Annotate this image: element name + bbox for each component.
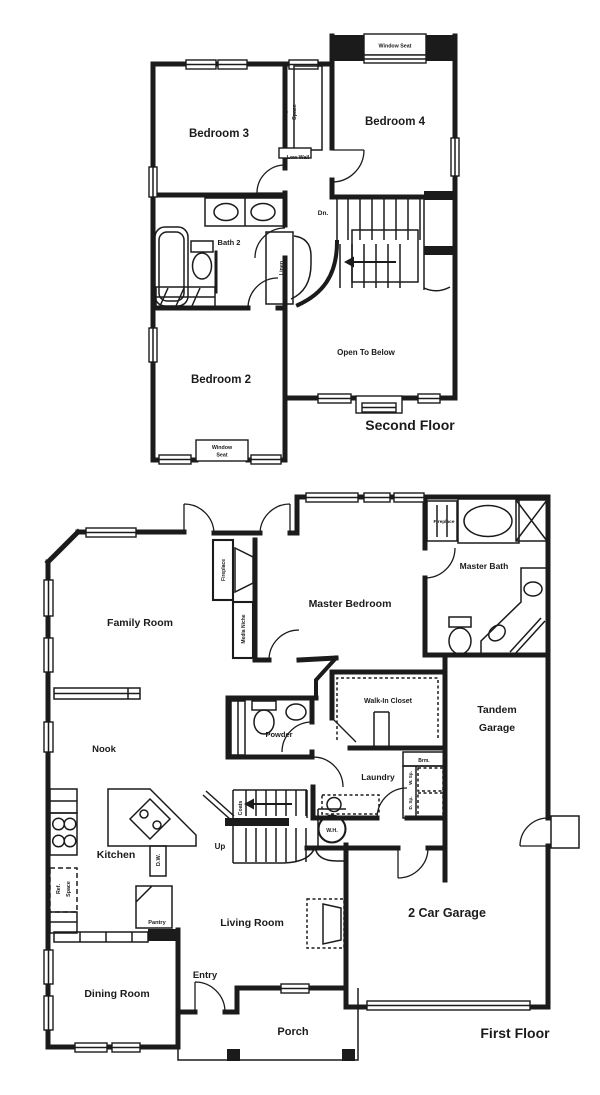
computer-space-label1: Computer — [283, 99, 289, 124]
firebox-icon — [235, 548, 253, 592]
toilet-icon — [191, 241, 213, 252]
bedroom4-label: Bedroom 4 — [365, 116, 426, 128]
bedroom2-label: Bedroom 2 — [191, 374, 251, 386]
second-floor-walls — [153, 35, 455, 460]
refrigerator-space — [50, 868, 77, 912]
first-floor-plan: Family Room Master Bedroom Master Bath F… — [44, 493, 579, 1061]
fireplace-label: Fireplace — [433, 519, 454, 525]
pantry-label: Pantry — [148, 920, 166, 926]
low-wall-label: Low Wall — [287, 155, 310, 161]
kitchen-fixtures — [50, 789, 196, 942]
nook-counter — [54, 688, 140, 699]
stair-arrow — [344, 257, 354, 268]
porch-post — [227, 1049, 240, 1061]
sink-icon — [486, 622, 509, 644]
stair-rail — [225, 818, 289, 826]
floor-plan: Bedroom 3 Bedroom 4 Bedroom 2 Bath 2 Win… — [0, 0, 600, 1090]
sink-icon — [251, 204, 275, 221]
vanity-counter — [481, 568, 548, 655]
porch-structure — [178, 988, 358, 1061]
bedroom3-label: Bedroom 3 — [189, 128, 249, 140]
tandem-garage-label1: Tandem — [477, 704, 516, 716]
computer-desk — [294, 66, 322, 150]
window-seat-bottom-label2: Seat — [216, 453, 227, 459]
toilet-icon — [252, 701, 276, 710]
dishwasher-label: D.W. — [156, 853, 162, 866]
first-floor-title: First Floor — [480, 1025, 550, 1041]
up-label: Up — [215, 842, 226, 851]
master-bath-label: Master Bath — [460, 561, 509, 571]
ref-space-label2: Space — [66, 881, 72, 897]
laundry-label: Laundry — [361, 772, 395, 782]
porch-label: Porch — [277, 1026, 308, 1038]
sink-icon — [524, 582, 542, 596]
walk-in-closet-label: Walk-In Closet — [364, 698, 413, 705]
pocket-door — [510, 618, 545, 655]
walkin-closet-interior — [332, 678, 438, 748]
first-floor-walls — [48, 497, 548, 1047]
stairs-down — [337, 191, 455, 291]
second-floor-plan: Bedroom 3 Bedroom 4 Bedroom 2 Bath 2 Win… — [149, 34, 459, 464]
living-media-niche — [307, 899, 344, 948]
computer-space-label2: Space — [292, 104, 298, 120]
dining-room-label: Dining Room — [84, 988, 149, 1000]
kitchen-label: Kitchen — [97, 849, 136, 861]
coats-closet-door — [203, 791, 234, 820]
stoop — [551, 816, 579, 848]
window-seat-top-label: Window Seat — [379, 44, 412, 50]
tandem-garage-label2: Garage — [479, 722, 515, 734]
fireplace-label: Fireplace — [221, 559, 227, 581]
living-room-label: Living Room — [220, 917, 284, 929]
powder-label: Powder — [265, 730, 292, 739]
bath2-label: Bath 2 — [218, 238, 241, 247]
bathtub-icon — [155, 227, 188, 306]
bathtub-icon — [464, 506, 512, 537]
dryer-space-label: D. Sp. — [408, 796, 413, 809]
floor-plan-drawing: Bedroom 3 Bedroom 4 Bedroom 2 Bath 2 Win… — [0, 0, 600, 1090]
family-fireplace — [213, 540, 253, 658]
stairs-up — [203, 790, 346, 863]
window-seat-bottom-label1: Window — [212, 445, 233, 451]
porch-post — [342, 1049, 355, 1061]
toilet-icon — [449, 617, 471, 627]
ref-space-label1: Ref. — [56, 883, 62, 894]
sink-icon — [286, 704, 306, 720]
sink-icon — [214, 204, 238, 221]
bath2-fixtures — [155, 198, 293, 307]
entry-label: Entry — [193, 970, 218, 981]
second-floor-title: Second Floor — [365, 417, 455, 433]
linen-label: Linen — [279, 261, 285, 275]
wh-label: W.H. — [326, 828, 338, 834]
media-niche-label: Media Niche — [241, 614, 247, 643]
car-garage-label: 2 Car Garage — [408, 906, 486, 920]
open-to-below-label: Open To Below — [337, 348, 395, 357]
washer-space-label: W. Sp. — [408, 771, 413, 785]
cooktop-icon — [130, 799, 170, 839]
broom-label: Brm. — [418, 758, 430, 764]
dn-label: Dn. — [318, 210, 329, 217]
coats-label: Coats — [238, 801, 244, 816]
nook-label: Nook — [92, 744, 116, 755]
master-bedroom-label: Master Bedroom — [309, 598, 392, 610]
family-room-label: Family Room — [107, 617, 173, 629]
